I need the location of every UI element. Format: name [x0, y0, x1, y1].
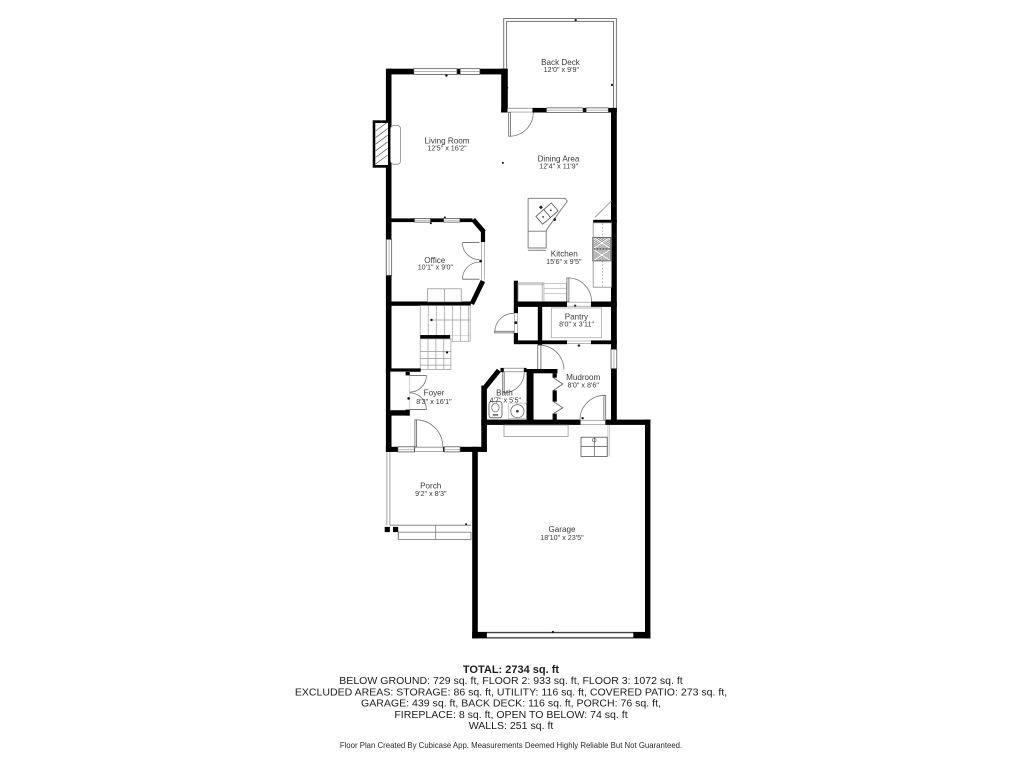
svg-text:FIREPLACE: 8 sq. ft, OPEN TO B: FIREPLACE: 8 sq. ft, OPEN TO BELOW: 74 s… — [394, 709, 627, 721]
svg-text:18'10" x 23'5": 18'10" x 23'5" — [540, 533, 584, 542]
svg-text:4'7" x 5'5": 4'7" x 5'5" — [490, 396, 522, 405]
svg-text:GARAGE: 439 sq. ft, BACK DECK:: GARAGE: 439 sq. ft, BACK DECK: 116 sq. f… — [361, 698, 661, 710]
svg-text:10'1" x 9'0": 10'1" x 9'0" — [418, 263, 454, 272]
svg-text:EXCLUDED AREAS: STORAGE: 86 sq: EXCLUDED AREAS: STORAGE: 86 sq. ft, UTIL… — [295, 686, 727, 698]
svg-text:12'5" x 16'2": 12'5" x 16'2" — [427, 144, 467, 153]
svg-text:BELOW GROUND: 729 sq. ft, FLOO: BELOW GROUND: 729 sq. ft, FLOOR 2: 933 s… — [339, 675, 683, 687]
svg-text:15'6" x 9'5": 15'6" x 9'5" — [546, 257, 582, 266]
svg-text:8'0" x 8'6": 8'0" x 8'6" — [567, 380, 599, 389]
svg-text:Floor Plan Created By Cubicase: Floor Plan Created By Cubicase App. Meas… — [340, 741, 682, 750]
svg-text:9'2" x 8'3": 9'2" x 8'3" — [415, 489, 447, 498]
svg-text:12'0" x 9'9": 12'0" x 9'9" — [544, 65, 580, 74]
svg-text:8'3" x 16'1": 8'3" x 16'1" — [416, 397, 452, 406]
svg-text:WALLS: 251 sq. ft: WALLS: 251 sq. ft — [469, 720, 554, 732]
svg-text:8'0" x 3'11": 8'0" x 3'11" — [559, 319, 594, 328]
svg-text:12'4" x 11'9": 12'4" x 11'9" — [539, 162, 578, 171]
